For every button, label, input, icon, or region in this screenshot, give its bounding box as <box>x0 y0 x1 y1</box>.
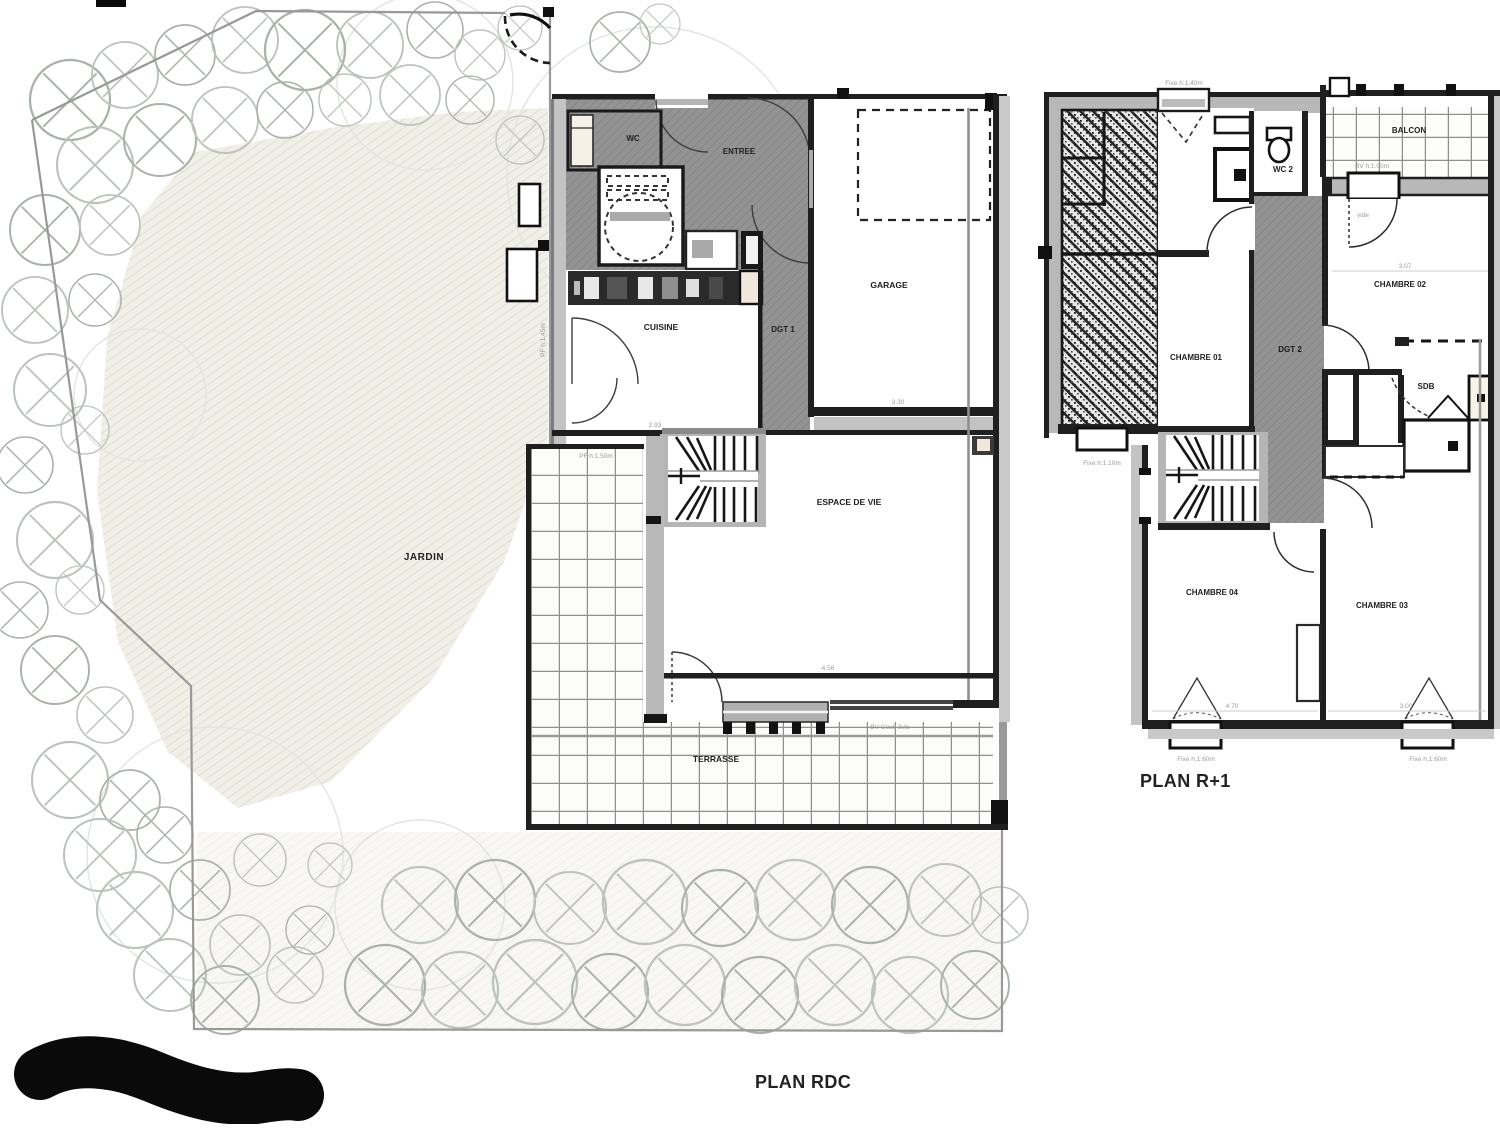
svg-text:CHAMBRE 03: CHAMBRE 03 <box>1356 601 1409 610</box>
svg-text:ESPACE DE VIE: ESPACE DE VIE <box>817 497 882 507</box>
svg-text:PF h:1.45m: PF h:1.45m <box>540 323 547 357</box>
svg-text:3.00: 3.00 <box>1400 703 1413 710</box>
svg-text:Fixe h:1.10m: Fixe h:1.10m <box>1083 460 1121 467</box>
svg-text:4.56: 4.56 <box>822 665 835 672</box>
svg-text:3.30: 3.30 <box>892 399 905 406</box>
svg-text:WC: WC <box>626 134 640 143</box>
svg-text:Fixe h:1.40m: Fixe h:1.40m <box>1165 80 1203 87</box>
svg-text:CHAMBRE 04: CHAMBRE 04 <box>1186 588 1239 597</box>
svg-text:CHAMBRE 02: CHAMBRE 02 <box>1374 280 1427 289</box>
svg-text:CHAMBRE 01: CHAMBRE 01 <box>1170 353 1223 362</box>
svg-text:GARAGE: GARAGE <box>870 280 908 290</box>
svg-text:BALCON: BALCON <box>1392 126 1426 135</box>
svg-text:3.07: 3.07 <box>1399 263 1412 270</box>
svg-text:BV h:1.00m: BV h:1.00m <box>1355 163 1389 170</box>
svg-text:CUISINE: CUISINE <box>644 322 679 332</box>
svg-text:Fixe h:1.60m: Fixe h:1.60m <box>1177 756 1215 763</box>
svg-text:ENTREE: ENTREE <box>723 147 756 156</box>
svg-text:BV Coul. 3vtx: BV Coul. 3vtx <box>870 724 910 731</box>
svg-text:WC 2: WC 2 <box>1273 165 1294 174</box>
svg-text:Fixe h:1.60m: Fixe h:1.60m <box>1409 756 1447 763</box>
svg-text:2.93: 2.93 <box>649 422 662 429</box>
svg-text:DGT 1: DGT 1 <box>771 325 795 334</box>
svg-text:DGT 2: DGT 2 <box>1278 345 1302 354</box>
svg-text:PF h:1.50m: PF h:1.50m <box>579 453 613 460</box>
svg-text:4.70: 4.70 <box>1226 703 1239 710</box>
svg-text:JARDIN: JARDIN <box>404 552 444 563</box>
svg-text:vide: vide <box>1357 212 1369 219</box>
svg-text:PLAN R+1: PLAN R+1 <box>1140 771 1231 791</box>
svg-text:TERRASSE: TERRASSE <box>693 754 740 764</box>
svg-text:SDB: SDB <box>1418 382 1435 391</box>
svg-text:PLAN RDC: PLAN RDC <box>755 1072 851 1092</box>
